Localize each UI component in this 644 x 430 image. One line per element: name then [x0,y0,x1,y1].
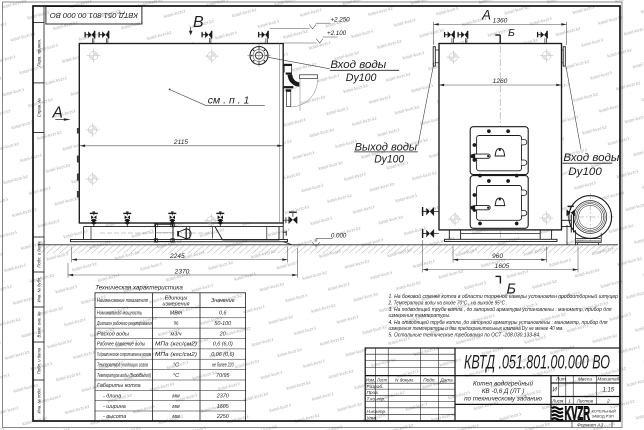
svg-text:1260: 1260 [493,78,508,85]
svg-text:+2.100: +2.100 [327,30,347,37]
svg-text:Лист: Лист [551,398,563,403]
svg-text:2. Температура воды на входе: 2. Температура воды на входе 70°С , на в… [388,301,508,307]
svg-text:МПа (кгс/см2): МПа (кгс/см2) [155,352,197,358]
svg-text:МПа (кгс/см2): МПа (кгс/см2) [155,342,197,348]
svg-text:Лит.: Лит. [555,377,567,382]
svg-text:Дата: Дата [439,378,453,383]
svg-text:Гидравлическое сопротивление к: Гидравлическое сопротивление котла [97,352,151,358]
svg-text:измерения температуры.: измерения температуры. [389,313,451,319]
svg-text:не более 220: не более 220 [212,362,234,368]
svg-text:0,6: 0,6 [219,311,227,317]
svg-text:KVZR: KVZR [565,403,591,424]
svg-text:Диапазон рабочего регулировани: Диапазон рабочего регулирования [96,321,152,327]
svg-text:м3/ч: м3/ч [171,331,182,337]
svg-text:Техническая характеристика: Техническая характеристика [95,284,183,291]
svg-text:2115: 2115 [173,139,189,146]
svg-text:2370: 2370 [174,268,190,275]
svg-text:4. На отводящей трубе котла ,: 4. На отводящей трубе котла ,до запорной… [389,319,608,326]
svg-text:Наименование показателя: Наименование показателя [97,298,148,304]
svg-text:- ширина: - ширина [103,404,126,410]
svg-text:2250: 2250 [216,414,229,420]
svg-text:А: А [52,104,63,121]
svg-text:20: 20 [219,331,226,337]
svg-text:960: 960 [492,253,503,260]
svg-text:°С: °С [173,373,179,379]
svg-text:Утв.: Утв. [367,416,378,421]
svg-text:2: 2 [606,398,610,403]
svg-text:Справ. №: Справ. № [36,98,41,117]
svg-text:70/95: 70/95 [216,373,230,379]
svg-text:И: И [553,388,558,394]
svg-text:измерения: измерения [163,302,190,308]
svg-text:5. Остальные технические треб: 5. Остальные технические требования по О… [389,333,541,339]
svg-text:Выход воды: Выход воды [355,142,418,154]
svg-text:50-100: 50-100 [214,321,231,327]
svg-text:Масштаб: Масштаб [597,377,619,382]
svg-text:Номинальная мощность: Номинальная мощность [97,311,142,317]
svg-text:Перв. примен.: Перв. примен. [36,39,41,67]
svg-text:А: А [481,8,491,23]
svg-text:Взам. инв. №: Взам. инв. № [36,311,41,337]
svg-text:1360: 1360 [493,18,508,25]
svg-text:1605: 1605 [495,263,510,270]
svg-text:КВТД.051.801.00.000 ВО: КВТД.051.801.00.000 ВО [50,11,138,20]
svg-text:Формат А3: Формат А3 [577,423,604,429]
svg-text:°С: °С [173,362,179,368]
svg-text:Dy100: Dy100 [346,72,377,84]
svg-text:Подп.: Подп. [423,378,435,383]
svg-text:2370: 2370 [216,394,229,400]
svg-text:КВТД .051.801.00.000 ВО: КВТД .051.801.00.000 ВО [464,352,610,374]
svg-text:Вход воды: Вход воды [563,152,619,164]
svg-text:Вход воды: Вход воды [330,59,387,71]
svg-text:Рабочее давление воды: Рабочее давление воды [97,342,145,348]
svg-text:Инв. № дубл.: Инв. № дубл. [36,277,41,303]
svg-text:Изм.: Изм. [366,378,376,383]
svg-text:Расход воды: Расход воды [97,331,129,337]
svg-text:1. На боковой стенке котла в: 1. На боковой стенке котла в области топ… [389,293,619,300]
svg-text:Температура уходящих газов: Температура уходящих газов [97,362,148,368]
svg-text:Лист: Лист [376,378,387,383]
svg-text:Dy100: Dy100 [568,166,602,178]
svg-text:В: В [193,14,204,31]
svg-text:%: % [174,321,179,327]
svg-text:Значение: Значение [211,298,235,304]
svg-text:- длина: - длина [103,394,121,400]
svg-text:Разраб.: Разраб. [367,384,384,389]
svg-text:1605: 1605 [217,404,230,410]
svg-text:мм: мм [172,394,180,400]
svg-text:измерения температуры и два пр: измерения температуры и два предохраните… [389,326,564,332]
svg-text:Пров.: Пров. [367,390,379,395]
svg-text:+2.250: +2.250 [331,16,351,23]
svg-text:Инв. № подл.: Инв. № подл. [36,388,41,414]
svg-text:2245: 2245 [169,253,185,260]
svg-text:Габариты котла: Габариты котла [97,383,141,389]
svg-text:Н.контр.: Н.контр. [367,409,387,414]
svg-text:Т.контр.: Т.контр. [367,396,386,401]
svg-text:по техническому заданию: по техническому заданию [464,394,542,402]
svg-text:МВт: МВт [170,311,183,317]
svg-text:Масса: Масса [578,377,592,382]
svg-text:Б: Б [508,27,515,39]
svg-text:Котел водогрейный: Котел водогрейный [473,380,533,388]
svg-text:Температура воды (Вход/Выход): Температура воды (Вход/Выход) [97,373,151,379]
svg-text:N докум.: N докум. [395,378,414,383]
svg-text:мм: мм [172,414,180,420]
svg-text:см . п . 1: см . п . 1 [208,95,250,106]
svg-text:КВ -0,6 Д (ЛТ ): КВ -0,6 Д (ЛТ ) [482,388,525,395]
svg-text:0,06 (0,6): 0,06 (0,6) [211,352,234,358]
svg-text:1:15: 1:15 [602,388,614,394]
svg-text:Подп. и дата: Подп. и дата [36,347,41,374]
svg-text:мм: мм [172,404,180,410]
svg-text:Dy100: Dy100 [374,153,405,165]
svg-text:0,6 (6,0): 0,6 (6,0) [213,342,233,348]
svg-text:ЗАВОД РЭП: ЗАВОД РЭП [592,413,614,418]
svg-text:0.000: 0.000 [331,233,347,240]
svg-text:- высота: - высота [103,414,126,420]
